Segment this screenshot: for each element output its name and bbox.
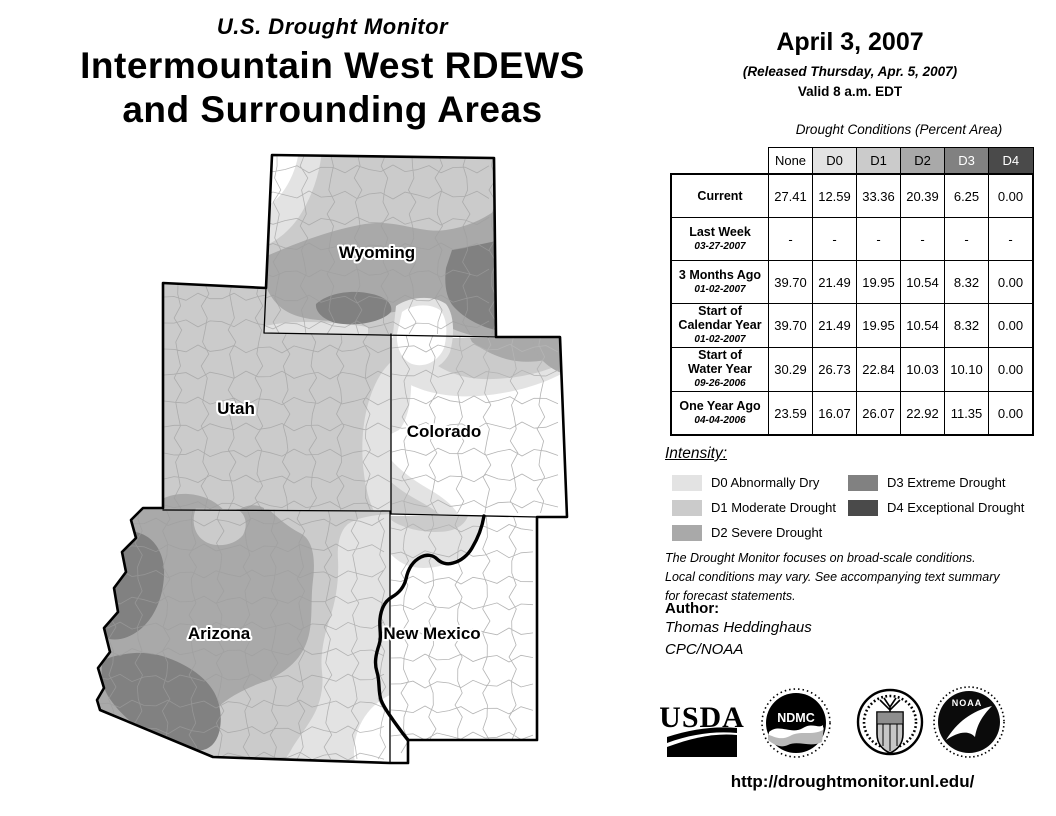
row-label-date: 09-26-2006 (672, 377, 768, 391)
drought-monitor-url[interactable]: http://droughtmonitor.unl.edu/ (660, 772, 1045, 792)
doc-shield-chief (877, 712, 903, 724)
legend-column-1: D0 Abnormally DryD1 Moderate DroughtD2 S… (672, 470, 836, 545)
row-label: Start of Water Year09-26-2006 (671, 348, 769, 392)
map-date: April 3, 2007 (660, 28, 1040, 57)
legend-column-2: D3 Extreme DroughtD4 Exceptional Drought (848, 470, 1024, 520)
row-label-text: Start of Water Year (672, 348, 768, 376)
table-row: Start of Calendar Year01-02-200739.7021.… (671, 304, 1033, 348)
value-cell: 0.00 (989, 392, 1034, 436)
doc-seal-logo (858, 690, 922, 754)
value-cell: 22.84 (857, 348, 901, 392)
drought-table: NoneD0D1D2D3D4 Current27.4112.5933.3620.… (670, 147, 1034, 436)
row-label-date: 04-04-2006 (672, 414, 768, 428)
state-label-arizona: Arizona (188, 624, 251, 643)
value-cell: 10.54 (901, 304, 945, 348)
state-label-colorado: Colorado (407, 422, 482, 441)
page-title-line2: and Surrounding Areas (15, 88, 650, 132)
column-header-d0: D0 (813, 148, 857, 175)
logo-row: USDA NDMC NOAA (660, 683, 1045, 765)
value-cell: 19.95 (857, 304, 901, 348)
intensity-legend: Intensity: D0 Abnormally DryD1 Moderate … (665, 445, 1050, 470)
row-label-date: 01-02-2007 (672, 283, 768, 297)
legend-label-d0: D0 Abnormally Dry (711, 475, 819, 490)
value-cell: 27.41 (769, 174, 813, 218)
value-cell: 0.00 (989, 261, 1034, 304)
row-label-date: 03-27-2007 (672, 240, 768, 254)
value-cell: - (813, 218, 857, 261)
value-cell: 8.32 (945, 261, 989, 304)
value-cell: 26.07 (857, 392, 901, 436)
author-heading: Author: (665, 600, 812, 617)
value-cell: 39.70 (769, 304, 813, 348)
value-cell: 39.70 (769, 261, 813, 304)
value-cell: 10.54 (901, 261, 945, 304)
value-cell: 8.32 (945, 304, 989, 348)
table-row: 3 Months Ago01-02-200739.7021.4919.9510.… (671, 261, 1033, 304)
value-cell: 12.59 (813, 174, 857, 218)
value-cell: - (901, 218, 945, 261)
state-label-wyoming: Wyoming (339, 243, 415, 262)
value-cell: - (857, 218, 901, 261)
row-label: 3 Months Ago01-02-2007 (671, 261, 769, 304)
value-cell: 33.36 (857, 174, 901, 218)
legend-swatch-d4 (848, 500, 878, 516)
value-cell: 21.49 (813, 304, 857, 348)
value-cell: - (769, 218, 813, 261)
value-cell: 10.03 (901, 348, 945, 392)
row-label-text: Last Week (672, 225, 768, 239)
row-label-text: Current (672, 189, 768, 203)
row-label-text: Start of Calendar Year (672, 304, 768, 332)
value-cell: 0.00 (989, 174, 1034, 218)
state-label-new-mexico: New Mexico (383, 624, 480, 643)
map-title-block: U.S. Drought Monitor Intermountain West … (15, 14, 650, 132)
released-date: (Released Thursday, Apr. 5, 2007) (660, 64, 1040, 79)
table-corner-cell (671, 148, 769, 175)
value-cell: 21.49 (813, 261, 857, 304)
value-cell: 30.29 (769, 348, 813, 392)
drought-table-header: NoneD0D1D2D3D4 (671, 148, 1033, 175)
legend-swatch-d0 (672, 475, 702, 491)
value-cell: 23.59 (769, 392, 813, 436)
legend-label-d1: D1 Moderate Drought (711, 500, 836, 515)
legend-label-d2: D2 Severe Drought (711, 525, 822, 540)
legend-swatch-d2 (672, 525, 702, 541)
legend-item-d1: D1 Moderate Drought (672, 495, 836, 520)
column-header-none: None (769, 148, 813, 175)
value-cell: - (989, 218, 1034, 261)
row-label: Start of Calendar Year01-02-2007 (671, 304, 769, 348)
legend-heading: Intensity: (665, 445, 1050, 463)
value-cell: 16.07 (813, 392, 857, 436)
noaa-logo: NOAA (934, 687, 1004, 757)
value-cell: - (945, 218, 989, 261)
legend-label-d3: D3 Extreme Drought (887, 475, 1006, 490)
state-label-utah: Utah (217, 399, 255, 418)
usdm-overtitle: U.S. Drought Monitor (15, 14, 650, 40)
row-label: Current (671, 174, 769, 218)
value-cell: 22.92 (901, 392, 945, 436)
value-cell: 6.25 (945, 174, 989, 218)
column-header-d1: D1 (857, 148, 901, 175)
value-cell: 10.10 (945, 348, 989, 392)
table-row: Last Week03-27-2007------ (671, 218, 1033, 261)
legend-item-d3: D3 Extreme Drought (848, 470, 1024, 495)
column-header-d2: D2 (901, 148, 945, 175)
value-cell: 11.35 (945, 392, 989, 436)
page-title: Intermountain West RDEWS and Surrounding… (15, 44, 650, 132)
legend-item-d2: D2 Severe Drought (672, 520, 836, 545)
author-block: Author: Thomas Heddinghaus CPC/NOAA (665, 600, 812, 661)
table-row: Current27.4112.5933.3620.396.250.00 (671, 174, 1033, 218)
row-label: Last Week03-27-2007 (671, 218, 769, 261)
author-name: Thomas Heddinghaus (665, 617, 812, 639)
usda-logo: USDA (660, 701, 745, 757)
value-cell: 20.39 (901, 174, 945, 218)
legend-swatch-d1 (672, 500, 702, 516)
table-caption: Drought Conditions (Percent Area) (770, 122, 1028, 137)
legend-item-d4: D4 Exceptional Drought (848, 495, 1024, 520)
author-org: CPC/NOAA (665, 639, 812, 661)
ndmc-logo-text: NDMC (777, 711, 815, 725)
column-header-d4: D4 (989, 148, 1034, 175)
legend-label-d4: D4 Exceptional Drought (887, 500, 1024, 515)
page-title-line1: Intermountain West RDEWS (15, 44, 650, 88)
row-label: One Year Ago04-04-2006 (671, 392, 769, 436)
disclaimer-text: The Drought Monitor focuses on broad-sca… (665, 549, 1055, 606)
ndmc-logo: NDMC (762, 689, 830, 757)
value-cell: 0.00 (989, 304, 1034, 348)
value-cell: 0.00 (989, 348, 1034, 392)
noaa-logo-text: NOAA (952, 698, 983, 708)
column-header-d3: D3 (945, 148, 989, 175)
date-block: April 3, 2007 (Released Thursday, Apr. 5… (660, 28, 1040, 99)
valid-time: Valid 8 a.m. EDT (660, 84, 1040, 99)
legend-swatch-d3 (848, 475, 878, 491)
legend-item-d0: D0 Abnormally Dry (672, 470, 836, 495)
row-label-date: 01-02-2007 (672, 333, 768, 347)
table-row: Start of Water Year09-26-200630.2926.732… (671, 348, 1033, 392)
value-cell: 19.95 (857, 261, 901, 304)
table-row: One Year Ago04-04-200623.5916.0726.0722.… (671, 392, 1033, 436)
value-cell: 26.73 (813, 348, 857, 392)
row-label-text: One Year Ago (672, 399, 768, 413)
row-label-text: 3 Months Ago (672, 268, 768, 282)
drought-table-body: Current27.4112.5933.3620.396.250.00Last … (671, 174, 1033, 435)
